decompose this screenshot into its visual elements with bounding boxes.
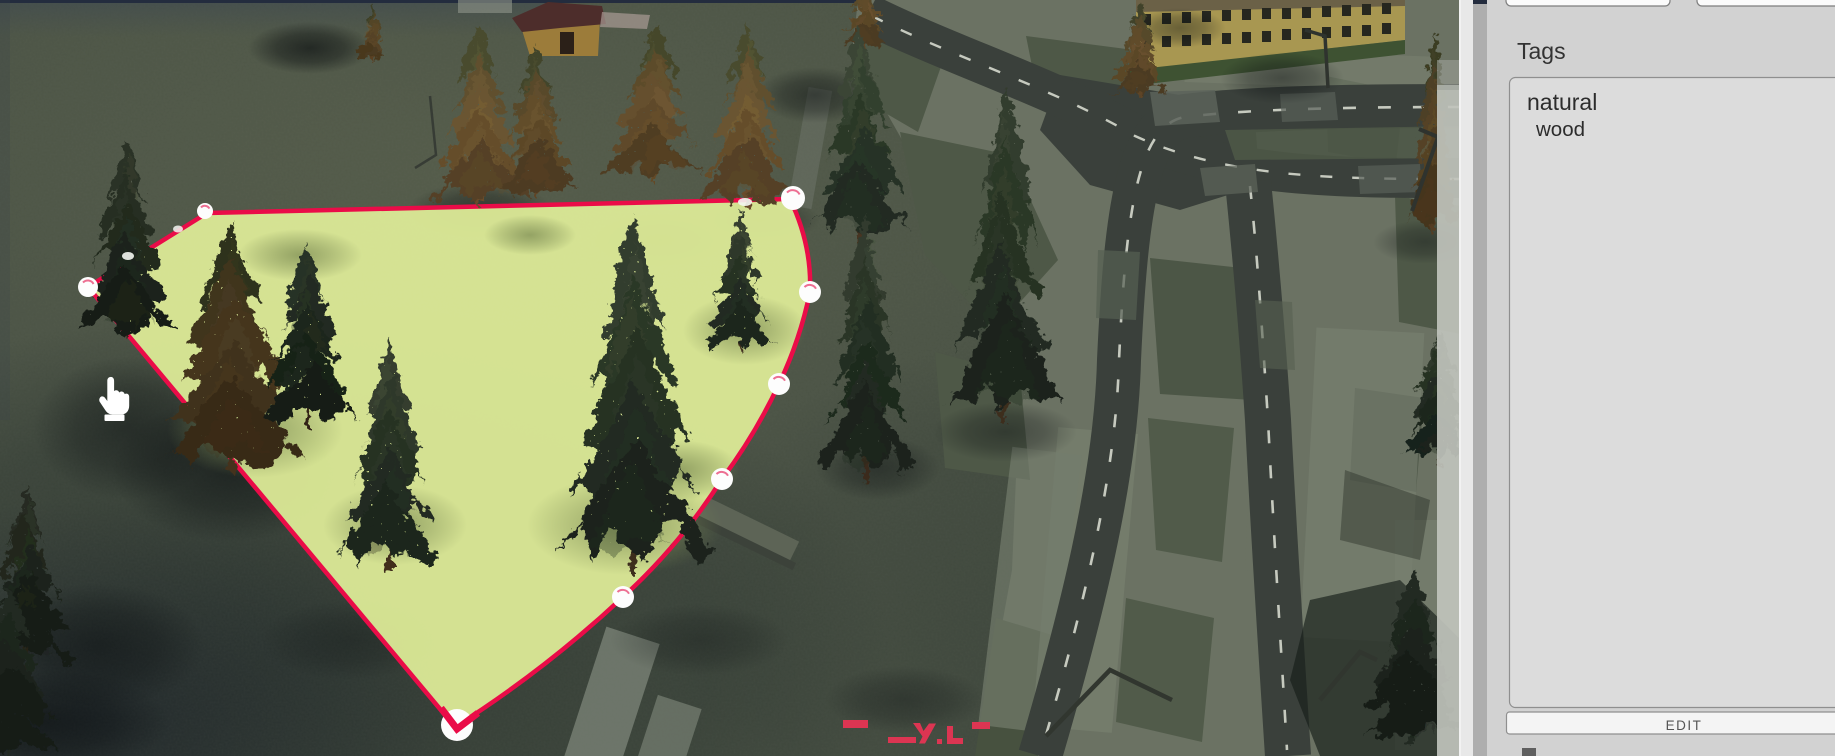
svg-text:natural: natural — [1527, 89, 1597, 115]
svg-text:wood: wood — [1535, 118, 1585, 141]
svg-text:EDIT: EDIT — [1666, 718, 1703, 733]
svg-text:Tags: Tags — [1517, 38, 1566, 64]
